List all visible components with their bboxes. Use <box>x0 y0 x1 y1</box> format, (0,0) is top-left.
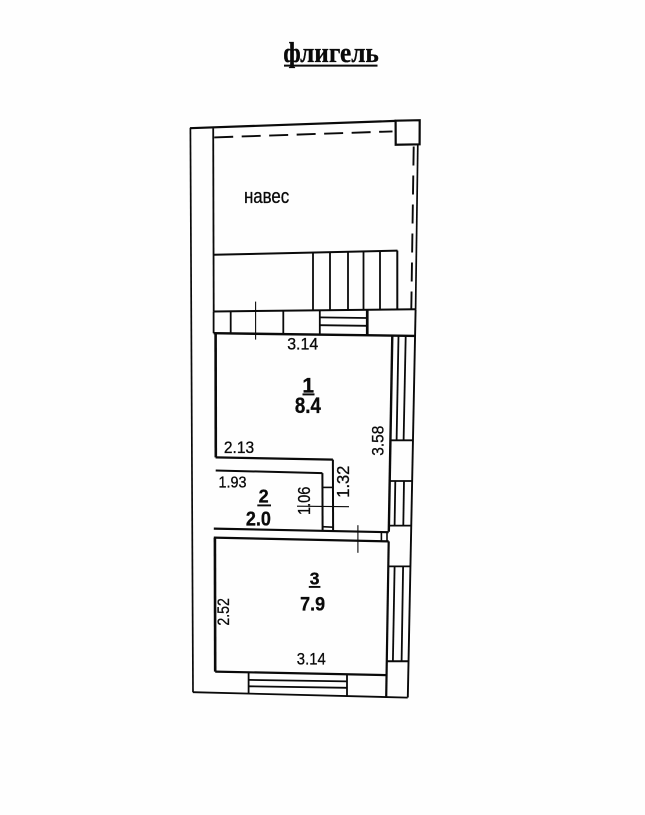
svg-text:флигель: флигель <box>283 36 379 68</box>
svg-text:2.13: 2.13 <box>224 438 254 457</box>
svg-text:3.58: 3.58 <box>369 426 388 456</box>
svg-text:2.0: 2.0 <box>246 508 271 530</box>
svg-text:1.32: 1.32 <box>332 466 353 498</box>
svg-text:8.4: 8.4 <box>295 395 322 419</box>
svg-text:навес: навес <box>244 185 289 208</box>
svg-text:2: 2 <box>259 486 269 506</box>
svg-text:3: 3 <box>310 569 320 589</box>
svg-text:2.52: 2.52 <box>215 598 233 625</box>
svg-text:1.93: 1.93 <box>218 474 246 492</box>
svg-text:7.9: 7.9 <box>300 593 325 615</box>
svg-text:3.14: 3.14 <box>287 335 318 354</box>
svg-text:3.14: 3.14 <box>297 651 326 669</box>
svg-text:1.06: 1.06 <box>295 487 315 516</box>
